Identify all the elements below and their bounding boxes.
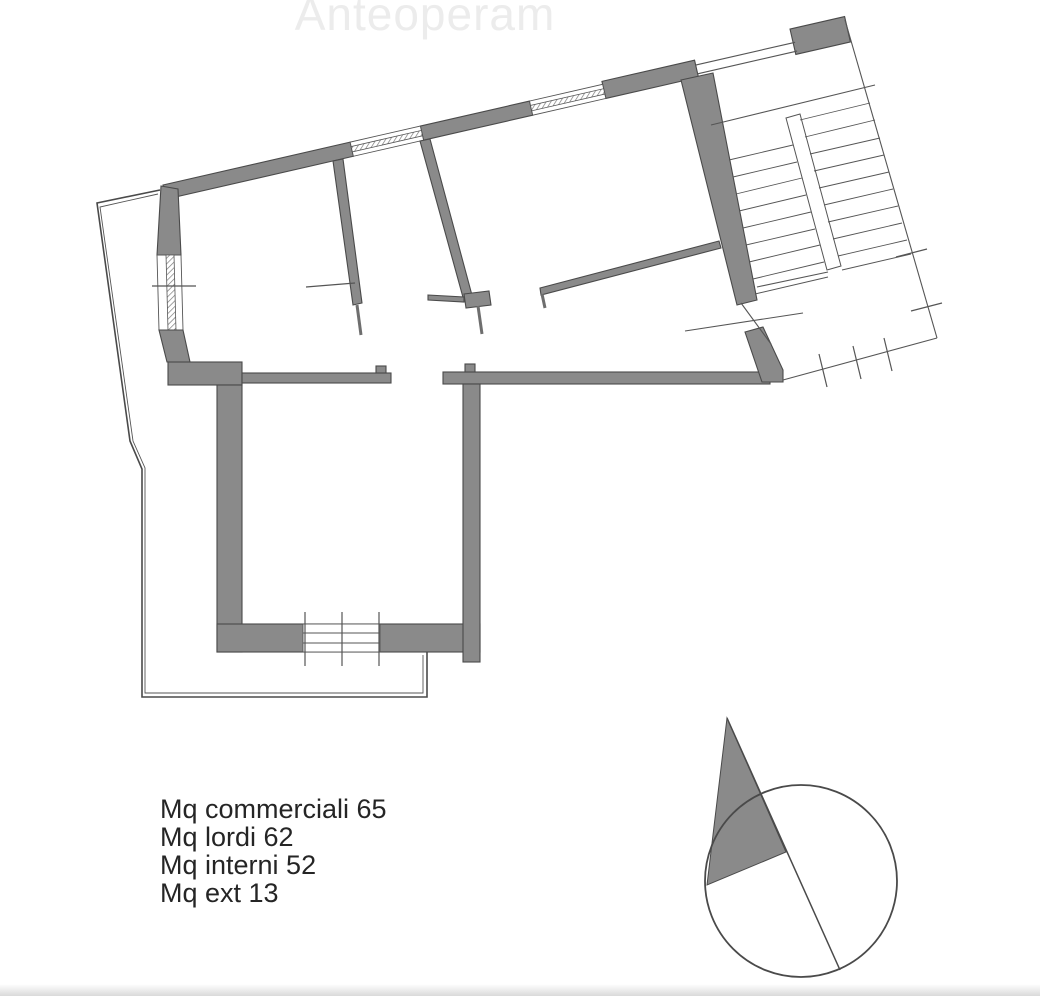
top-wall <box>160 17 850 200</box>
partition-walls <box>306 139 721 335</box>
stair-pier <box>790 17 850 55</box>
exterior-boundary <box>97 190 427 697</box>
window-top-3 <box>696 42 797 74</box>
left-wall <box>152 186 196 362</box>
partition-3 <box>540 241 721 295</box>
lower-wing <box>217 384 480 666</box>
bottom-edge-shade <box>0 984 1040 996</box>
hallway-walls <box>168 327 783 385</box>
window-bottom <box>303 612 380 666</box>
window-top-2 <box>530 84 606 115</box>
boundary-ticks <box>819 249 942 387</box>
screenshot-canvas: Anteoperam <box>0 0 1040 996</box>
area-line-lordi: Mq lordi 62 <box>160 822 294 852</box>
door-jamb-right <box>465 364 475 372</box>
area-line-commerciali: Mq commerciali 65 <box>160 794 387 824</box>
window-top-1 <box>350 126 423 156</box>
north-arrow-compass <box>705 718 897 977</box>
area-line-interni: Mq interni 52 <box>160 850 316 880</box>
partition-2 <box>420 139 473 301</box>
watermark-text: Anteoperam <box>295 0 556 40</box>
door-jamb-left <box>376 366 386 373</box>
area-summary: Mq commerciali 65 Mq lordi 62 Mq interni… <box>160 794 387 908</box>
floor-plan: Anteoperam <box>0 0 1040 996</box>
right-wall <box>681 73 803 344</box>
entrance-door-swing <box>685 313 803 331</box>
area-line-ext: Mq ext 13 <box>160 878 279 908</box>
